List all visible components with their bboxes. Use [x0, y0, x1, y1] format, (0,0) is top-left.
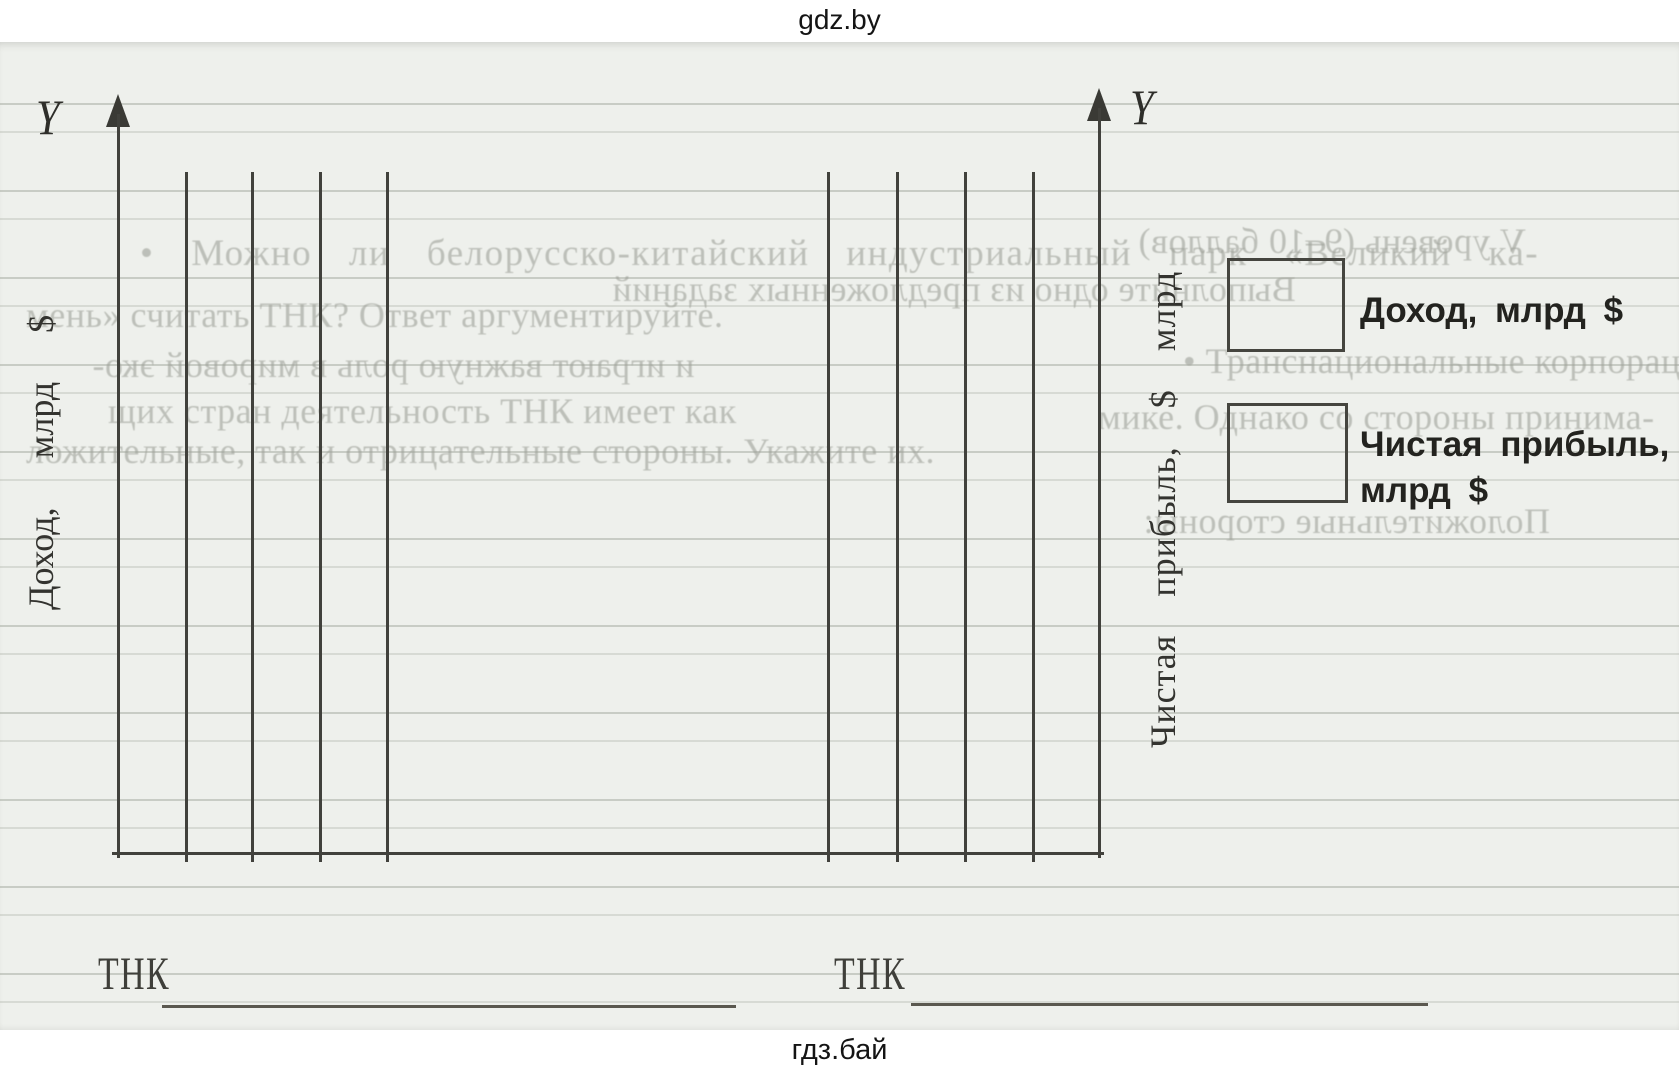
legend-label-net-profit-line1: Чистая прибыль, [1360, 422, 1669, 468]
y-axis-left [117, 114, 120, 858]
bar-slot-line [1032, 172, 1035, 862]
legend-label-net-profit: Чистая прибыль, млрд $ [1360, 422, 1669, 514]
x-axis-baseline [112, 852, 1104, 855]
y-axis-title-left: Доход, млрд $ [22, 268, 68, 610]
ghost-text: щих стран деятельность ТНК имеет как [108, 390, 737, 432]
x-axis-label-left: ТНК [98, 951, 170, 998]
x-axis-label-right: ТНК [834, 951, 906, 998]
bar-slot-line [319, 172, 322, 862]
legend-label-net-profit-line2: млрд $ [1360, 468, 1669, 514]
ghost-text: ложительные, так и отрицательные стороны… [26, 430, 935, 472]
bar-slot-line [827, 172, 830, 862]
y-axis-letter-left: Y [36, 92, 60, 142]
bar-slot-line [185, 172, 188, 862]
y-axis-title-right: Чистая прибыль, $ млрд [1144, 226, 1190, 748]
bar-slot-line [964, 172, 967, 862]
legend-swatch-net-profit [1227, 403, 1348, 503]
answer-blank-line-left [162, 1005, 736, 1008]
scanned-workbook-page: gdz.by • Можно ли белорусско-китайский и… [0, 0, 1679, 1074]
legend-swatch-income [1227, 258, 1345, 352]
paper-sheet: • Можно ли белорусско-китайский индустри… [0, 42, 1679, 1030]
legend-label-income: Доход, млрд $ [1360, 288, 1623, 334]
watermark-bottom: гдз.бай [0, 1034, 1679, 1067]
ghost-text: V уровень (9–10 баллов) [1138, 220, 1526, 262]
bar-slot-line [896, 172, 899, 862]
bar-slot-line [386, 172, 389, 862]
answer-blank-line-right [911, 1003, 1428, 1006]
watermark-top: gdz.by [0, 4, 1679, 36]
bar-slot-line [251, 172, 254, 862]
y-axis-right [1098, 108, 1101, 858]
ghost-text: и играют важную роль в мировой эко- [92, 344, 695, 386]
y-axis-letter-right: Y [1130, 82, 1154, 132]
ghost-text: Выполните одно из предложенных заданий [612, 268, 1296, 310]
